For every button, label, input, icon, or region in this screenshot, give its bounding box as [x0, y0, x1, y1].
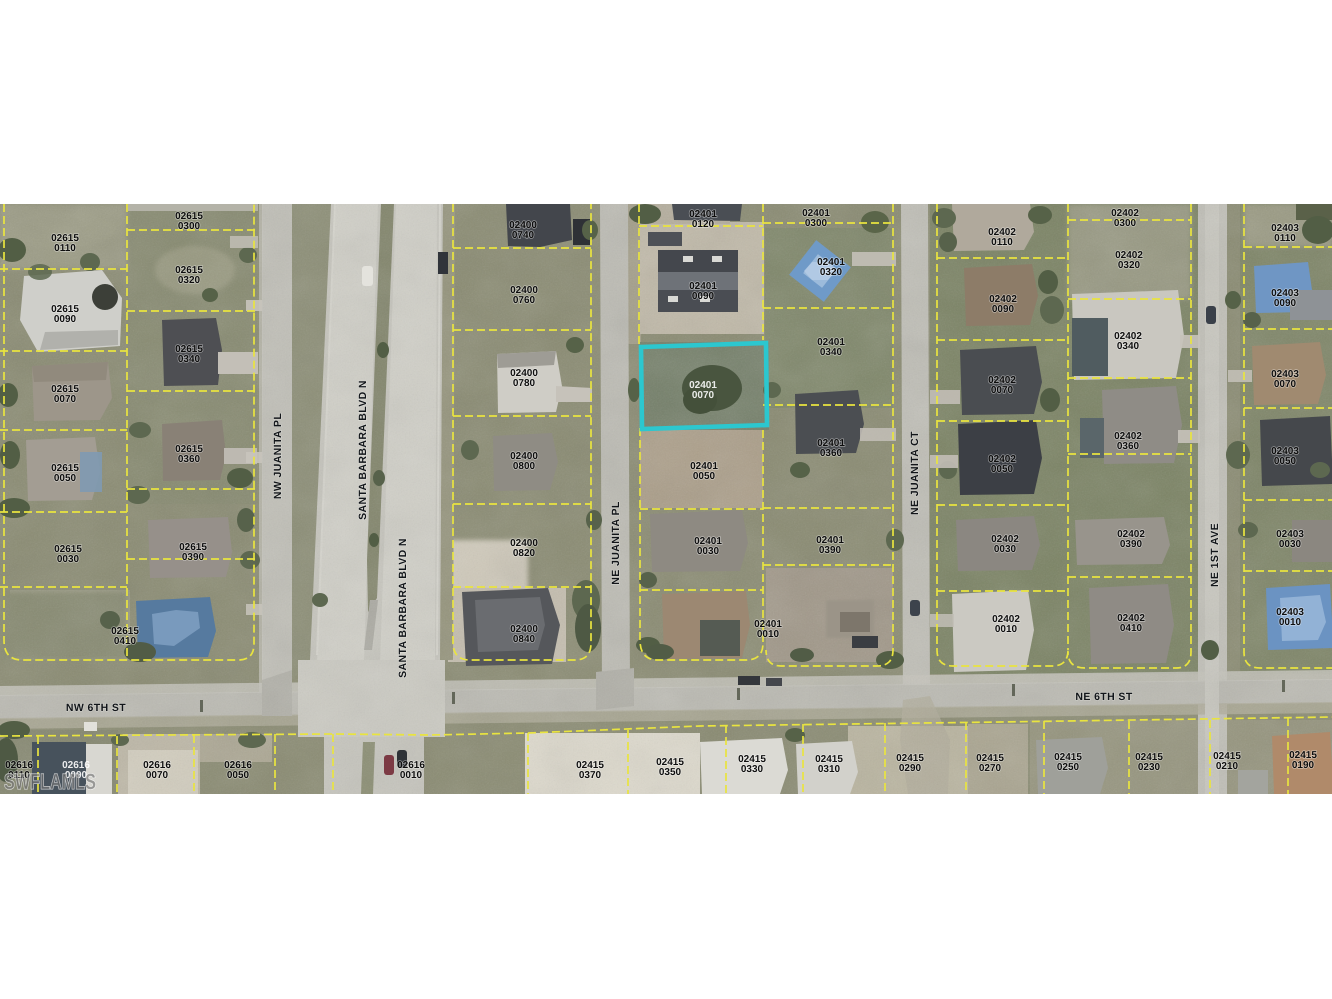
svg-text:024150270: 024150270 — [976, 753, 1004, 774]
svg-text:024010090: 024010090 — [689, 281, 717, 302]
svg-text:026150410: 026150410 — [111, 626, 139, 647]
svg-text:024010070: 024010070 — [689, 380, 717, 401]
svg-text:024020410: 024020410 — [1117, 613, 1145, 634]
svg-text:024010320: 024010320 — [817, 257, 845, 278]
svg-text:NE 6TH ST: NE 6TH ST — [1075, 691, 1132, 703]
svg-text:024020390: 024020390 — [1117, 529, 1145, 550]
svg-text:024000780: 024000780 — [510, 368, 538, 389]
svg-text:024150330: 024150330 — [738, 754, 766, 775]
svg-text:024150310: 024150310 — [815, 754, 843, 775]
svg-text:024010120: 024010120 — [689, 209, 717, 230]
svg-text:026150070: 026150070 — [51, 384, 79, 405]
svg-text:NE JUANITA CT: NE JUANITA CT — [909, 431, 921, 515]
svg-text:024150210: 024150210 — [1213, 751, 1241, 772]
svg-text:026160070: 026160070 — [143, 760, 171, 781]
svg-text:024010340: 024010340 — [817, 337, 845, 358]
svg-text:024030110: 024030110 — [1271, 223, 1299, 244]
svg-text:024150230: 024150230 — [1135, 752, 1163, 773]
svg-text:026150030: 026150030 — [54, 544, 82, 565]
svg-text:024010050: 024010050 — [690, 461, 718, 482]
svg-text:026150390: 026150390 — [179, 542, 207, 563]
svg-text:024020340: 024020340 — [1114, 331, 1142, 352]
svg-text:026160010: 026160010 — [397, 760, 425, 781]
svg-text:026150300: 026150300 — [175, 211, 203, 232]
svg-text:026150050: 026150050 — [51, 463, 79, 484]
svg-text:024020070: 024020070 — [988, 375, 1016, 396]
svg-text:024020030: 024020030 — [991, 534, 1019, 555]
svg-text:026150090: 026150090 — [51, 304, 79, 325]
svg-text:024020010: 024020010 — [992, 614, 1020, 635]
svg-text:024010300: 024010300 — [802, 208, 830, 229]
svg-text:024020320: 024020320 — [1115, 250, 1143, 271]
svg-text:024020300: 024020300 — [1111, 208, 1139, 229]
svg-text:026150360: 026150360 — [175, 444, 203, 465]
svg-text:024000760: 024000760 — [510, 285, 538, 306]
svg-text:024150290: 024150290 — [896, 753, 924, 774]
svg-text:026150340: 026150340 — [175, 344, 203, 365]
svg-text:NE 1ST AVE: NE 1ST AVE — [1209, 523, 1221, 587]
svg-text:024020050: 024020050 — [988, 454, 1016, 475]
svg-text:024030030: 024030030 — [1276, 529, 1304, 550]
svg-text:024030070: 024030070 — [1271, 369, 1299, 390]
svg-text:024020110: 024020110 — [988, 227, 1016, 248]
svg-text:NE JUANITA PL: NE JUANITA PL — [610, 501, 622, 585]
svg-text:024030090: 024030090 — [1271, 288, 1299, 309]
svg-text:SWFLAMLS: SWFLAMLS — [4, 769, 96, 794]
svg-text:024010390: 024010390 — [816, 535, 844, 556]
svg-text:NW JUANITA PL: NW JUANITA PL — [272, 413, 284, 499]
svg-text:024020360: 024020360 — [1114, 431, 1142, 452]
svg-text:024010030: 024010030 — [694, 536, 722, 557]
svg-text:024030050: 024030050 — [1271, 446, 1299, 467]
svg-text:024150370: 024150370 — [576, 760, 604, 781]
svg-text:SANTA BARBARA BLVD N: SANTA BARBARA BLVD N — [357, 380, 369, 520]
svg-text:024000800: 024000800 — [510, 451, 538, 472]
svg-text:024020090: 024020090 — [989, 294, 1017, 315]
svg-text:024010360: 024010360 — [817, 438, 845, 459]
svg-text:024150350: 024150350 — [656, 757, 684, 778]
svg-text:024000820: 024000820 — [510, 538, 538, 559]
svg-text:024000740: 024000740 — [509, 220, 537, 241]
svg-text:026160050: 026160050 — [224, 760, 252, 781]
svg-text:024150250: 024150250 — [1054, 752, 1082, 773]
svg-text:NW 6TH ST: NW 6TH ST — [66, 702, 126, 714]
svg-text:026150320: 026150320 — [175, 265, 203, 286]
svg-text:SANTA BARBARA BLVD N: SANTA BARBARA BLVD N — [397, 538, 409, 678]
svg-text:024010010: 024010010 — [754, 619, 782, 640]
svg-text:026150110: 026150110 — [51, 233, 79, 254]
svg-text:024030010: 024030010 — [1276, 607, 1304, 628]
svg-text:024000840: 024000840 — [510, 624, 538, 645]
svg-text:024150190: 024150190 — [1289, 750, 1317, 771]
